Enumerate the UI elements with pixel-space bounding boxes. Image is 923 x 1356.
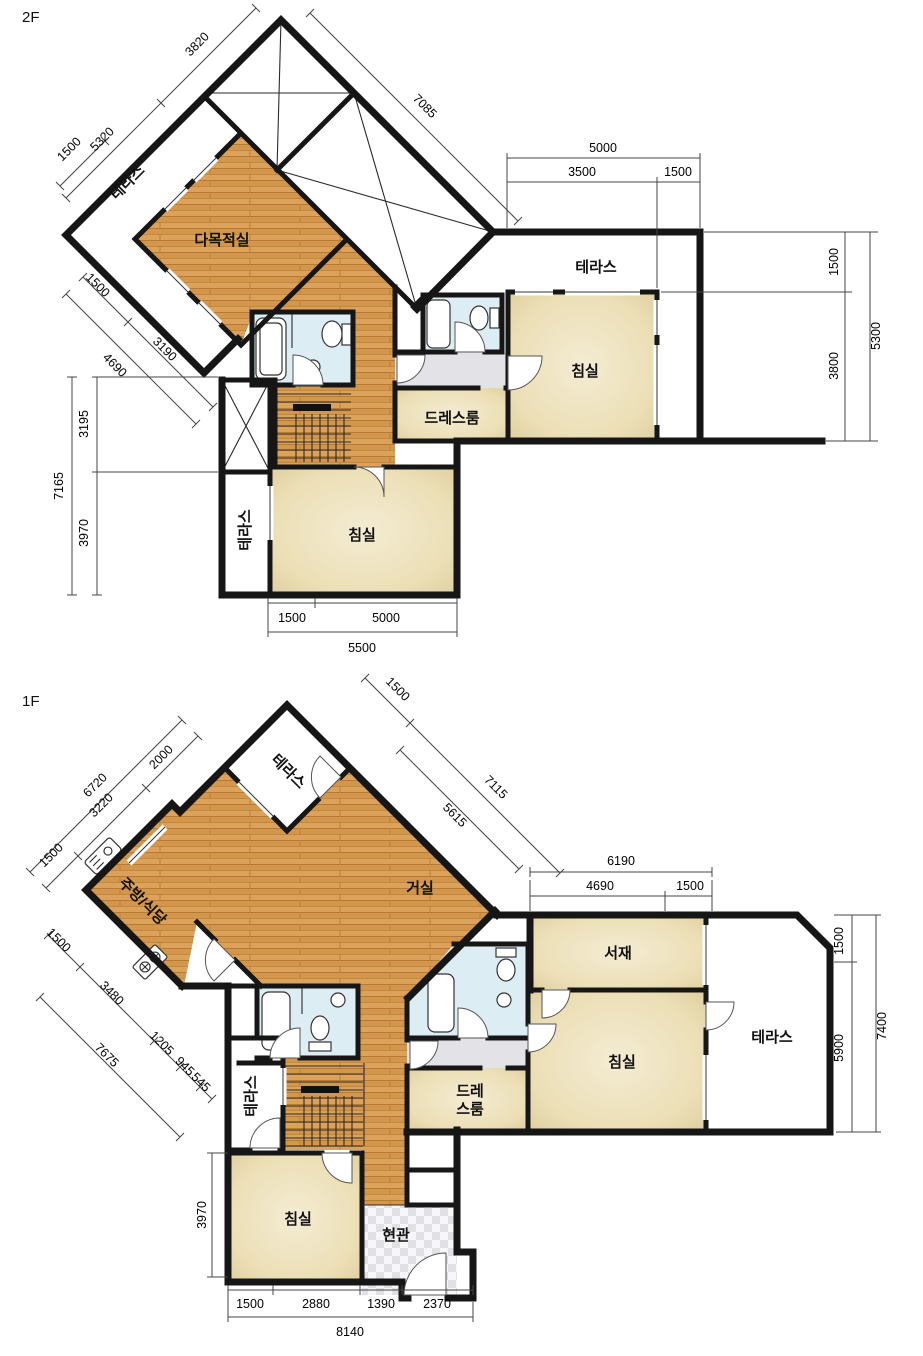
room-label-terrace-w-1f: 테라스 <box>243 1075 260 1117</box>
dim-1500-nw-1f: 1500 <box>36 840 66 870</box>
room-label-terrace-e-1f: 테라스 <box>751 1029 793 1046</box>
dim-2000: 2000 <box>146 742 176 772</box>
dim-7085: 7085 <box>410 91 440 121</box>
room-label-terrace-w-2f: 테라스 <box>237 509 254 551</box>
room-label-bedroom-e-1f: 침실 <box>608 1054 636 1071</box>
dim-1500-nw: 1500 <box>54 134 84 164</box>
toilet1-tank-1f-icon <box>309 1042 331 1051</box>
room-label-bedroom-s-1f: 침실 <box>284 1211 312 1228</box>
dim-5320: 5320 <box>87 124 117 154</box>
room-label-bedroom-s-2f: 침실 <box>348 527 376 544</box>
dim-1500-b-1f: 1500 <box>236 1297 264 1311</box>
dim-3820: 3820 <box>182 29 212 59</box>
toilet2-icon <box>470 306 488 330</box>
sink1-1f-icon <box>331 993 345 1007</box>
dim-4690-1f: 4690 <box>586 879 614 893</box>
floor-1f: 1F 테라스 거실 주방/식당 서재 침실 테라스 드레 스룸 침실 테라스 현… <box>22 674 889 1339</box>
dim-7115: 7115 <box>481 773 510 802</box>
toilet-icon <box>322 321 342 347</box>
dim-1500-e-1f: 1500 <box>676 879 704 893</box>
toilet2-tank-1f-icon <box>496 948 516 957</box>
dim-5500: 5500 <box>348 641 376 655</box>
dim-7165: 7165 <box>52 472 66 500</box>
dim-1390: 1390 <box>367 1297 395 1311</box>
toilet-tank-icon <box>342 324 351 345</box>
dim-1500-top-e: 1500 <box>664 165 692 179</box>
dim-1500-se-1f: 1500 <box>832 927 846 955</box>
shaft-x-2f <box>222 380 270 472</box>
room-label-terrace-e-2f: 테라스 <box>575 259 617 276</box>
floor-label-2f: 2F <box>22 9 40 26</box>
dim-5000-top: 5000 <box>589 141 617 155</box>
dim-3800: 3800 <box>827 352 841 380</box>
bathtub-inner-icon <box>260 323 282 375</box>
closet-s-floor <box>407 1170 457 1205</box>
dim-4690-2f: 4690 <box>100 350 130 380</box>
room-label-bedroom-e-2f: 침실 <box>571 363 599 380</box>
dim-7400: 7400 <box>875 1012 889 1040</box>
bathtub2-1f-icon <box>428 974 454 1032</box>
floor-2f: 2F 다목적실 테라스 테라스 침실 드레스룸 침실 테라스 5320 3820… <box>22 4 883 655</box>
dim-3500: 3500 <box>568 165 596 179</box>
dim-6190: 6190 <box>607 854 635 868</box>
dim-3970-1f: 3970 <box>195 1201 209 1229</box>
floor-label-1f: 1F <box>22 693 40 710</box>
dim-5900: 5900 <box>832 1034 846 1062</box>
dim-5615: 5615 <box>440 800 470 830</box>
bathtub2-icon <box>427 300 450 348</box>
room-label-study: 서재 <box>604 945 632 962</box>
room-label-dressroom-line2: 스룸 <box>456 1101 484 1118</box>
room-label-multipurpose: 다목적실 <box>194 231 249 249</box>
room-label-dressroom-line1: 드레 <box>456 1083 484 1100</box>
dim-2880: 2880 <box>302 1297 330 1311</box>
toilet2-tank-icon <box>490 308 499 328</box>
sink2-1f-icon <box>497 993 511 1007</box>
room-label-entry: 현관 <box>382 1227 410 1244</box>
dim-3195: 3195 <box>77 410 91 438</box>
dim-3970-2f: 3970 <box>77 519 91 547</box>
floor-plan-page: 2F 다목적실 테라스 테라스 침실 드레스룸 침실 테라스 5320 3820… <box>0 0 923 1356</box>
closet-nw-floor <box>228 986 257 1038</box>
dim-1500-sw-1f: 1500 <box>44 925 74 955</box>
dim-1500-se: 1500 <box>827 248 841 276</box>
dim-1500-bottom: 1500 <box>278 611 306 625</box>
dim-5000-bottom: 5000 <box>372 611 400 625</box>
dim-1500-ne-1f: 1500 <box>383 674 413 704</box>
dim-7675: 7675 <box>92 1040 122 1070</box>
dim-2370: 2370 <box>423 1297 451 1311</box>
toilet1-1f-icon <box>311 1016 329 1040</box>
toilet2-1f-icon <box>497 959 515 981</box>
dim-8140: 8140 <box>336 1325 364 1339</box>
dim-3480: 3480 <box>97 978 127 1008</box>
dim-5300: 5300 <box>869 322 883 350</box>
floor-plan-canvas: 2F 다목적실 테라스 테라스 침실 드레스룸 침실 테라스 5320 3820… <box>0 0 923 1356</box>
room-label-living: 거실 <box>406 880 434 897</box>
room-label-dressroom-2f: 드레스룸 <box>424 410 479 427</box>
